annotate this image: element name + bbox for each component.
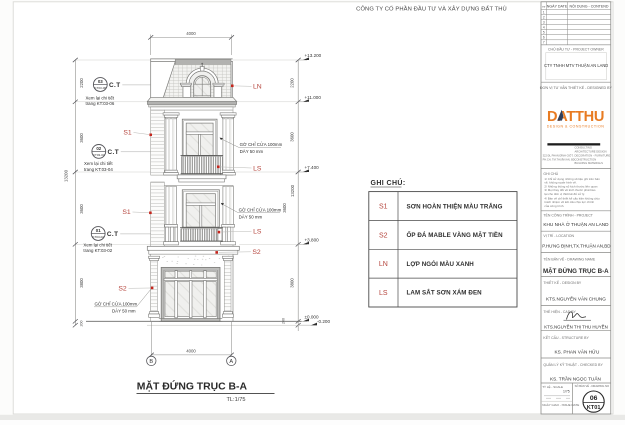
svg-text:SƠN HOÀN THIỆN MÀU TRẮNG: SƠN HOÀN THIỆN MÀU TRẮNG: [407, 202, 503, 210]
svg-text:TL:1/75: TL:1/75: [227, 397, 246, 403]
svg-text:LN: LN: [379, 261, 388, 268]
svg-text:P.HƯNG ĐỊNH,TX.THUẬN AN,BD: P.HƯNG ĐỊNH,TX.THUẬN AN,BD: [542, 242, 611, 248]
svg-text:THIẾT KẾ - DESIGN BY: THIẾT KẾ - DESIGN BY: [543, 280, 582, 285]
svg-text:DATTHU: DATTHU: [547, 109, 604, 125]
svg-text:trang KT:03-06: trang KT:03-06: [86, 101, 115, 106]
svg-text:QUẢN LÝ KỸ THUẬT - CHECKED BY: QUẢN LÝ KỸ THUẬT - CHECKED BY: [543, 362, 603, 367]
svg-text:3600: 3600: [79, 133, 84, 143]
svg-text:DÀY 50 mm: DÀY 50 mm: [240, 149, 264, 154]
svg-text:S1: S1: [123, 130, 132, 137]
svg-text:4: 4: [543, 25, 545, 29]
svg-text:KTS.NGUYỄN VĂN CHUNG: KTS.NGUYỄN VĂN CHUNG: [546, 296, 606, 302]
svg-text:trang KT:03-04: trang KT:03-04: [84, 167, 113, 172]
svg-text:LS: LS: [253, 165, 262, 172]
svg-text:CHỦ ĐẦU TƯ - PROJECT OWNER: CHỦ ĐẦU TƯ - PROJECT OWNER: [548, 47, 604, 52]
svg-text:THỂ HIỆN - CAD BY: THỂ HIỆN - CAD BY: [543, 309, 576, 314]
svg-text:01: 01: [96, 228, 101, 233]
svg-text:MẶT ĐỨNG TRỤC B-A: MẶT ĐỨNG TRỤC B-A: [543, 268, 609, 275]
svg-text:LAM SẮT SƠN XÁM ĐEN: LAM SẮT SƠN XÁM ĐEN: [407, 289, 483, 297]
svg-text:1: 1: [543, 10, 545, 14]
svg-text:3600: 3600: [282, 203, 287, 213]
svg-text:-0.200: -0.200: [317, 319, 330, 324]
svg-text:TT: TT: [542, 5, 546, 9]
svg-text:KT03-04: KT03-04: [93, 153, 105, 157]
svg-text:DECORATION - FURNITURE: DECORATION - FURNITURE: [575, 153, 611, 157]
svg-text:của công trình.: của công trình.: [544, 204, 564, 208]
svg-text:CÔNG TY CỔ PHẦN ĐẦU TƯ VÀ XÂY: CÔNG TY CỔ PHẦN ĐẦU TƯ VÀ XÂY DỰNG ĐẤT T…: [356, 5, 507, 12]
svg-text:2: 2: [543, 15, 545, 19]
svg-text:S2: S2: [379, 232, 388, 239]
svg-text:C.T: C.T: [108, 149, 120, 156]
svg-text:Xem lại chi tiết: Xem lại chi tiết: [86, 95, 115, 100]
svg-text:NỘI DUNG - CONTEND: NỘI DUNG - CONTEND: [570, 4, 609, 9]
svg-text:S1: S1: [122, 209, 131, 216]
svg-text:LS: LS: [253, 228, 262, 235]
svg-text:KS. PHAN VĂN HỮU: KS. PHAN VĂN HỮU: [555, 349, 601, 355]
svg-text:03: 03: [98, 79, 103, 84]
svg-text:13200: 13200: [64, 169, 69, 182]
svg-text:LS: LS: [379, 290, 388, 297]
svg-text:GHI CHÚ:: GHI CHÚ:: [371, 178, 406, 187]
svg-text:NGÀY GIAO - ISSUE DATE: NGÀY GIAO - ISSUE DATE: [542, 403, 579, 407]
svg-text:DÀY 50 mm: DÀY 50 mm: [112, 309, 136, 314]
svg-text:3600: 3600: [290, 132, 295, 142]
svg-text:B: B: [149, 359, 153, 365]
svg-text:1/75: 1/75: [563, 390, 570, 394]
svg-text:DÀY 50 mm: DÀY 50 mm: [239, 214, 263, 219]
svg-text:trang KT:03-02: trang KT:03-02: [83, 248, 112, 253]
svg-text:+7.400: +7.400: [305, 165, 320, 170]
svg-text:4000: 4000: [186, 31, 196, 36]
svg-text:3800: 3800: [79, 278, 84, 288]
svg-text:C.T: C.T: [107, 231, 119, 238]
svg-text:ARCHITECTURE DESIGN: ARCHITECTURE DESIGN: [575, 150, 607, 154]
svg-text:3600: 3600: [79, 204, 84, 214]
svg-text:DESIGN & CONSTRUCTION: DESIGN & CONSTRUCTION: [547, 125, 605, 129]
svg-text:2200: 2200: [290, 78, 295, 88]
svg-text:ĐƠN VỊ TƯ VẤN THIẾT KẾ - DESIG: ĐƠN VỊ TƯ VẤN THIẾT KẾ - DESIGNED BY: [540, 85, 613, 90]
svg-text:+13.200: +13.200: [305, 53, 322, 58]
svg-text:3800: 3800: [290, 278, 295, 288]
svg-text:LN: LN: [253, 84, 262, 91]
svg-text:S2: S2: [118, 286, 127, 293]
svg-text:02: 02: [96, 146, 101, 151]
svg-text:VỊ TRÍ - LOCATION: VỊ TRÍ - LOCATION: [543, 234, 574, 238]
svg-text:KT03-06: KT03-06: [95, 86, 107, 90]
svg-text:ỐP ĐÁ MABLE VÀNG MẶT TIỀN: ỐP ĐÁ MABLE VÀNG MẶT TIỀN: [407, 232, 504, 239]
svg-text:200: 200: [80, 321, 84, 327]
svg-text:CTY TNHH MTV THUẬN AN LAND: CTY TNHH MTV THUẬN AN LAND: [544, 63, 608, 68]
svg-text:TỶ LỆ - SCALE: TỶ LỆ - SCALE: [542, 384, 563, 389]
svg-text:KTS.NGUYỄN THỊ THU HUYỀN: KTS.NGUYỄN THỊ THU HUYỀN: [544, 324, 608, 329]
svg-text:KHU NHÀ Ở THUẬN AN LAND: KHU NHÀ Ở THUẬN AN LAND: [543, 221, 609, 227]
svg-text:BUILDING MATERIALS: BUILDING MATERIALS: [575, 161, 604, 165]
svg-text:A: A: [229, 359, 233, 365]
svg-text:13200: 13200: [290, 184, 295, 197]
svg-text:KẾT CẤU - STRUCTURE BY: KẾT CẤU - STRUCTURE BY: [543, 335, 589, 340]
svg-text:C.T: C.T: [109, 82, 121, 89]
svg-text:2200: 2200: [79, 78, 84, 88]
svg-text:6: 6: [543, 35, 545, 39]
svg-text:KT03-02: KT03-02: [92, 235, 104, 239]
svg-text:NGÀY DATE: NGÀY DATE: [547, 5, 568, 9]
svg-text:Xem lại chi tiết: Xem lại chi tiết: [83, 243, 112, 248]
svg-text:Xem lại chi tiết: Xem lại chi tiết: [84, 161, 113, 166]
svg-text:3: 3: [543, 20, 545, 24]
svg-text:KT01: KT01: [587, 405, 601, 411]
svg-text:5: 5: [543, 30, 545, 34]
svg-text:CONSULTING: CONSULTING: [575, 146, 592, 150]
svg-text:KS. TRẦN NGỌC TUẤN: KS. TRẦN NGỌC TUẤN: [550, 375, 601, 381]
svg-text:TÊN BẢN VẼ - DRAWING NAME: TÊN BẢN VẼ - DRAWING NAME: [543, 257, 595, 262]
svg-text:S1: S1: [379, 204, 388, 211]
svg-text:GỜ CHỈ CỬA 100mm: GỜ CHỈ CỬA 100mm: [239, 207, 282, 212]
svg-text:GỜ CHỈ CỬA 100mm: GỜ CHỈ CỬA 100mm: [240, 142, 283, 147]
svg-text:S2: S2: [252, 249, 261, 256]
svg-text:MẶT ĐỨNG TRỤC B-A: MẶT ĐỨNG TRỤC B-A: [137, 380, 248, 393]
svg-text:+11.000: +11.000: [305, 95, 322, 100]
svg-text:7: 7: [543, 41, 545, 45]
svg-text:06: 06: [590, 395, 598, 402]
svg-text:GHI CHÚ: GHI CHÚ: [543, 172, 558, 176]
svg-text:4000: 4000: [186, 348, 196, 353]
svg-text:+3.800: +3.800: [305, 237, 320, 242]
svg-text:GỜ CHỈ CỬA 100mm: GỜ CHỈ CỬA 100mm: [95, 302, 138, 307]
svg-text:CONSTRUCTION: CONSTRUCTION: [575, 157, 597, 161]
svg-text:TÊN CÔNG TRÌNH - PROJECT: TÊN CÔNG TRÌNH - PROJECT: [543, 212, 593, 217]
svg-text:lại cho đơn vị thiết kế để xử: lại cho đơn vị thiết kế để xử lý.: [544, 192, 585, 196]
svg-text:LỢP NGÓI MÀU XANH: LỢP NGÓI MÀU XANH: [407, 260, 475, 268]
